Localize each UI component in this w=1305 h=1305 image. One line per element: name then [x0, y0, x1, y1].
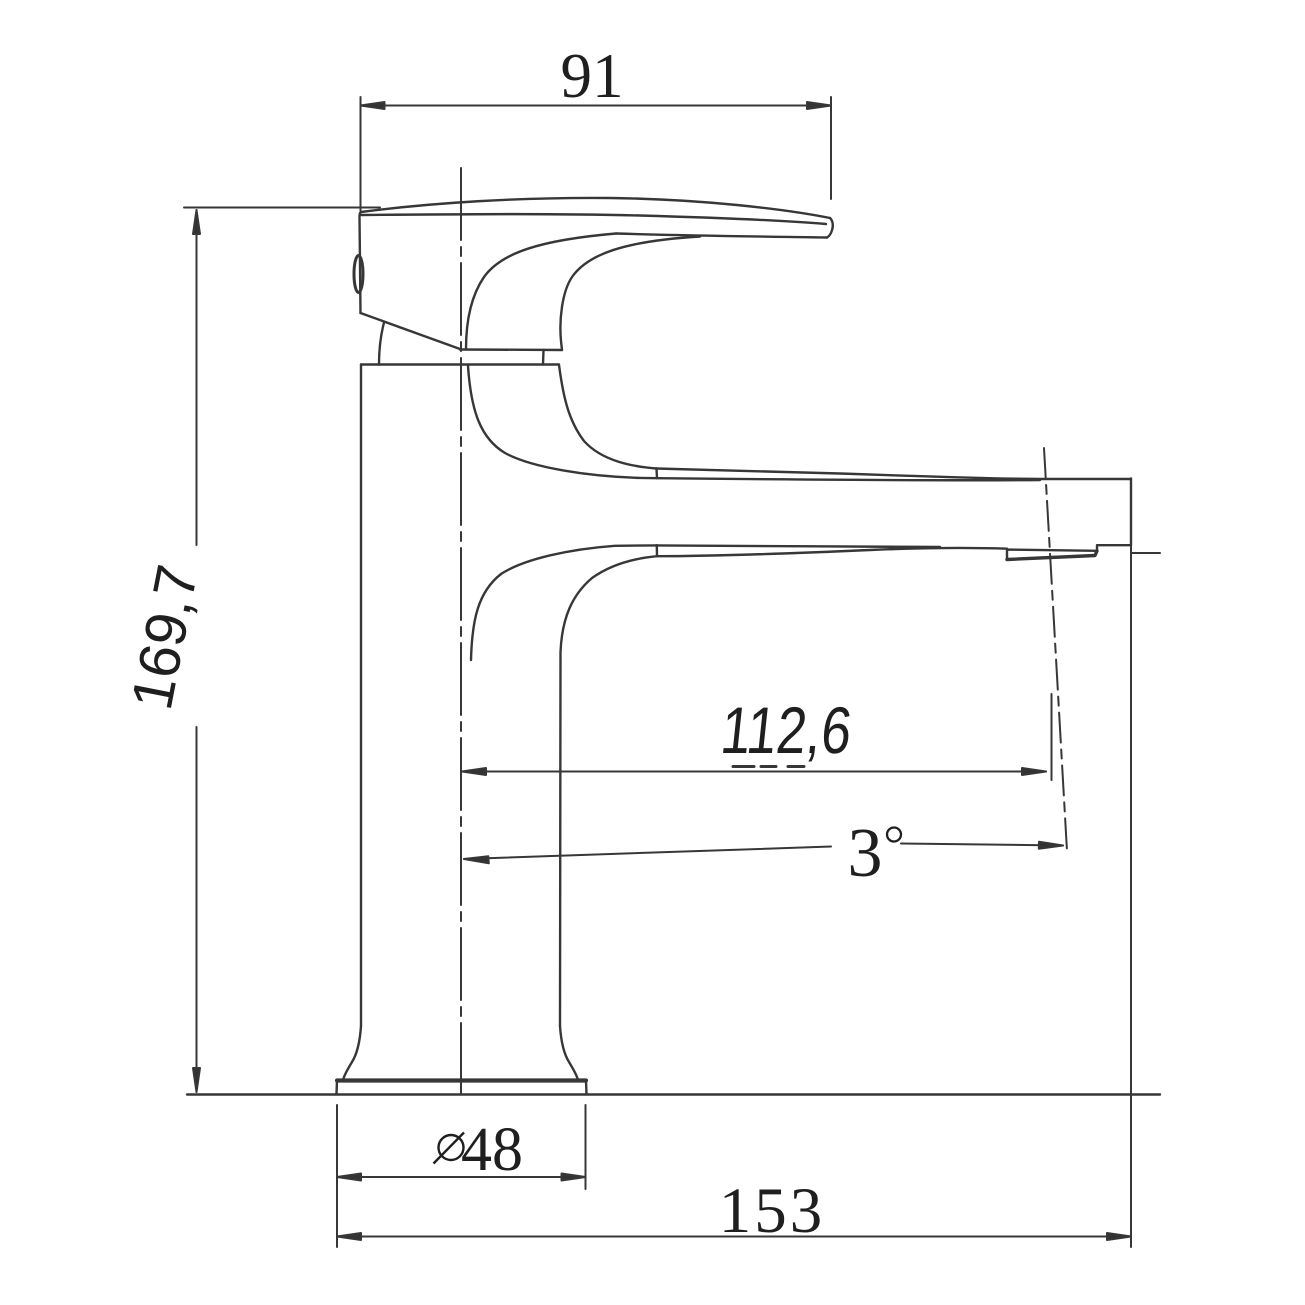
svg-text:91: 91 — [561, 41, 624, 111]
svg-text:112,6: 112,6 — [717, 694, 855, 768]
svg-text:48: 48 — [461, 1116, 523, 1184]
svg-text:153: 153 — [719, 1175, 826, 1247]
svg-text:169,7: 169,7 — [119, 560, 211, 715]
svg-text:3: 3 — [848, 815, 883, 892]
